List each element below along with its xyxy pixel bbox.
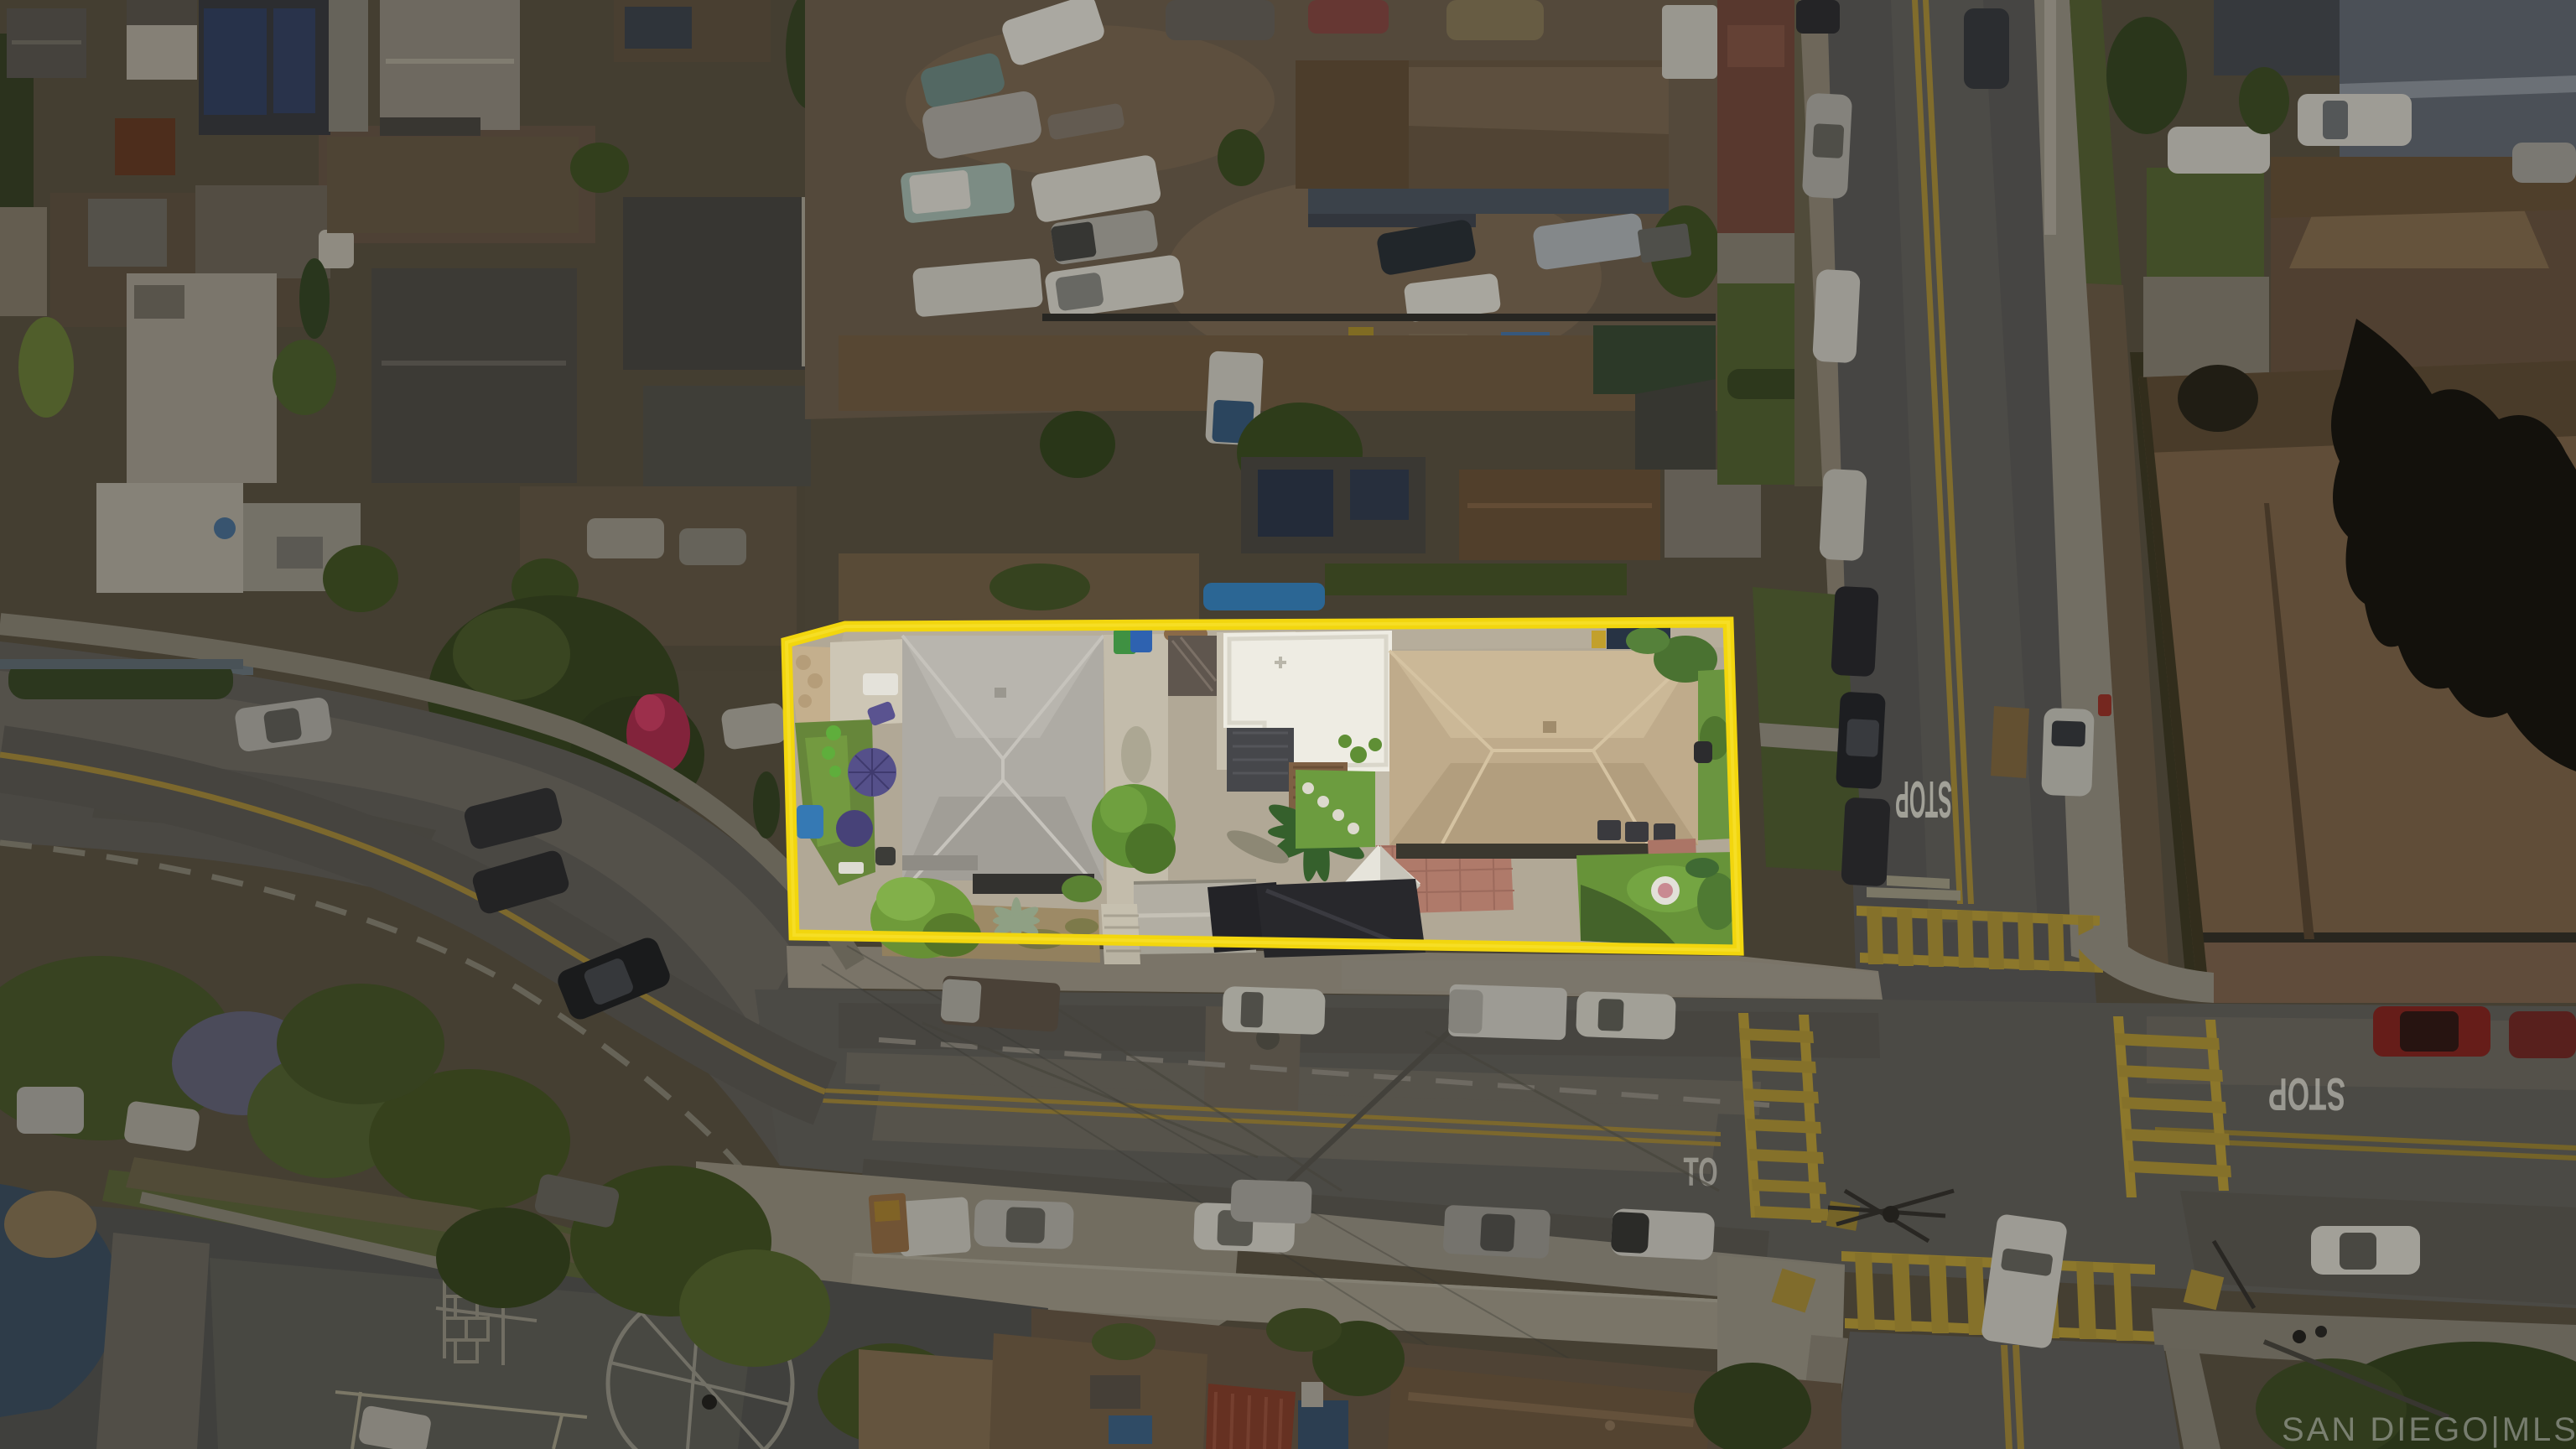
svg-text:SAN DIEGO|MLS: SAN DIEGO|MLS <box>2282 1411 2576 1448</box>
